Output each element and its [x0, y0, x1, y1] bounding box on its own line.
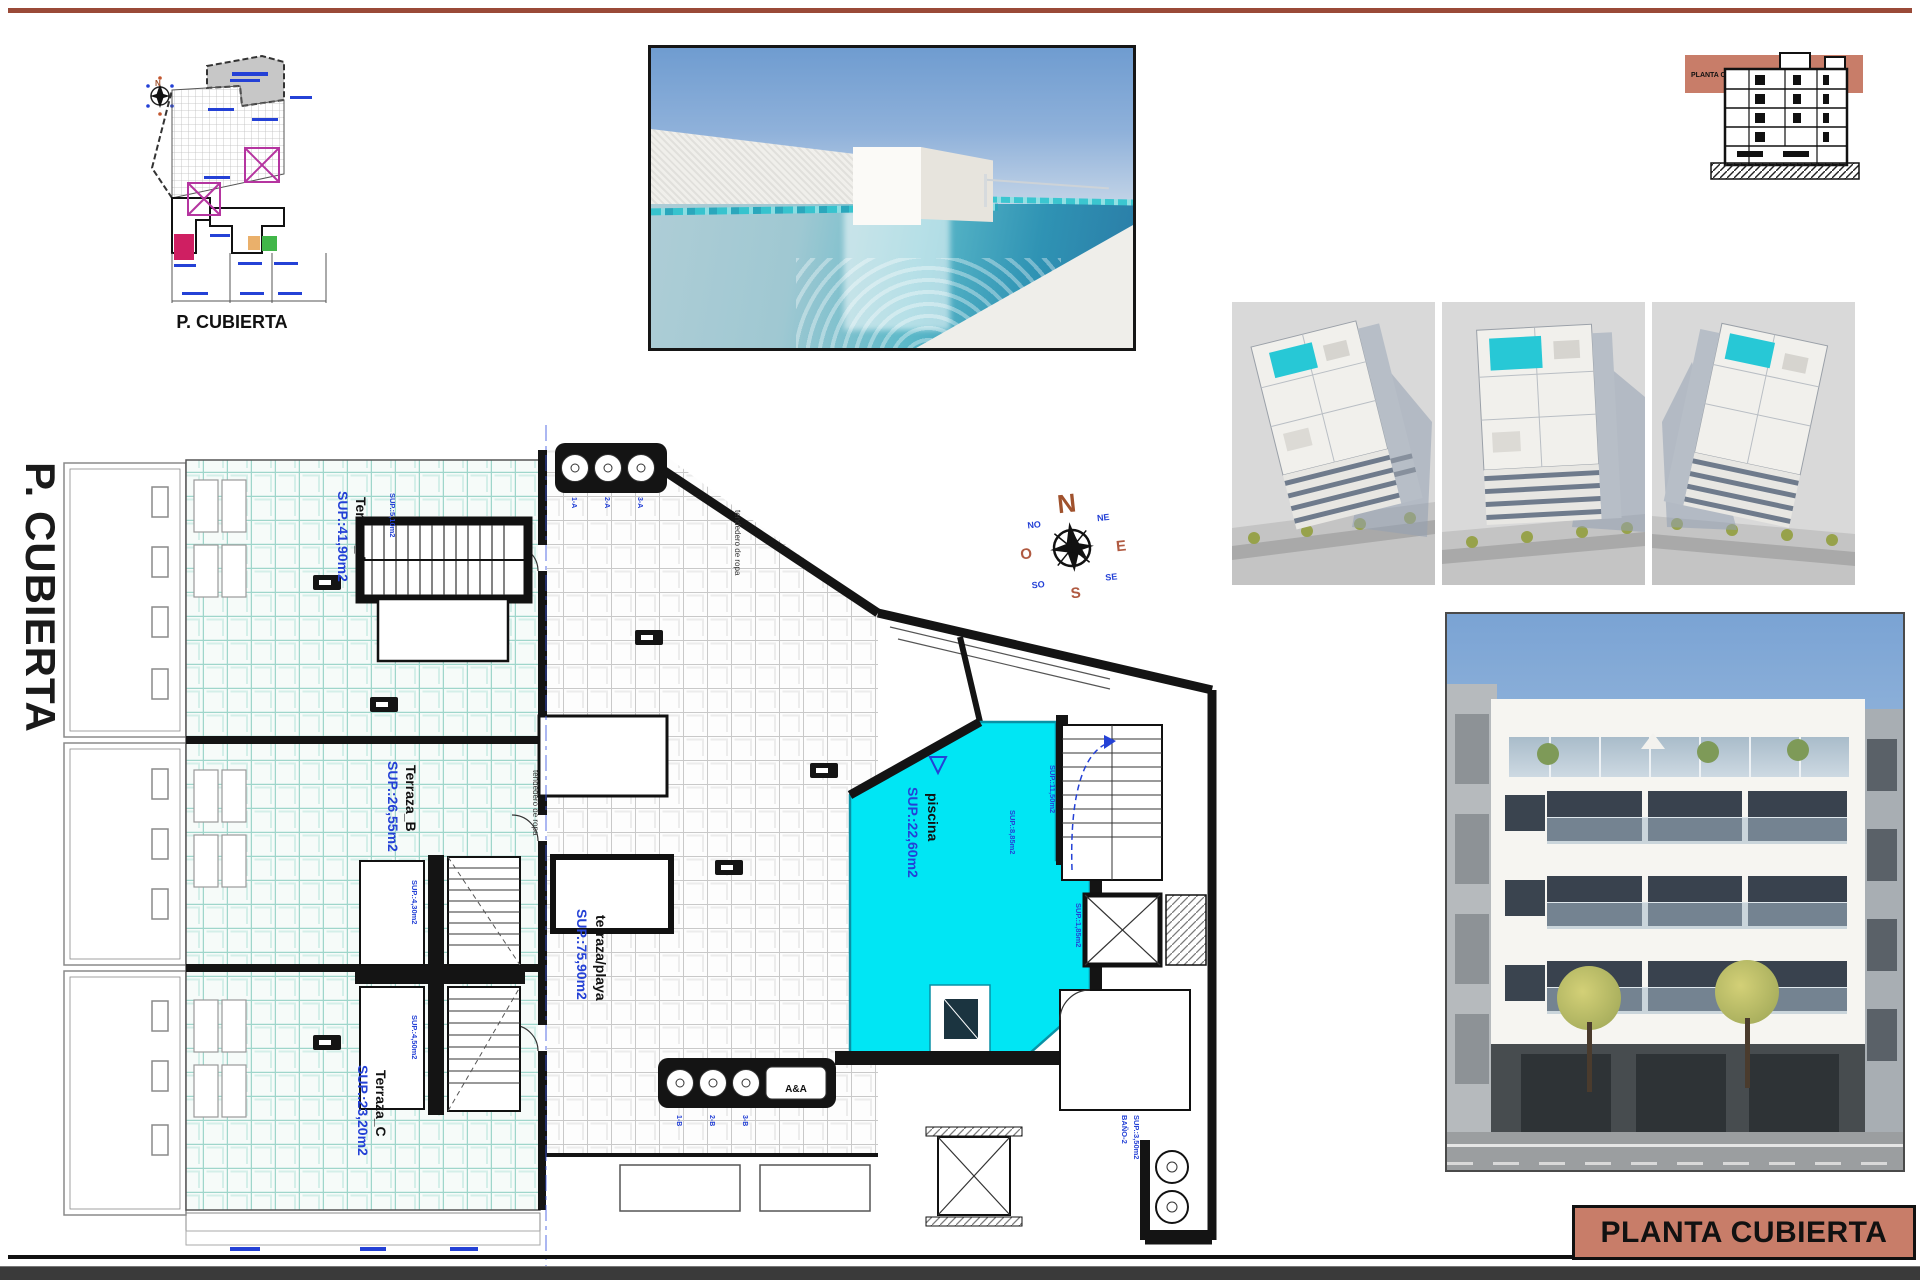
drawing-sheet: N	[0, 0, 1920, 1280]
site-unit-mark-green	[262, 236, 277, 251]
piscina-sup: SUP.:22,60m2	[905, 787, 921, 878]
deck-room	[539, 716, 667, 796]
stairwell-window	[1505, 880, 1545, 916]
deck-room-thick	[553, 857, 671, 931]
site-unit-mark-red	[174, 234, 194, 260]
stair-top	[360, 521, 528, 661]
sup-mini-label: SUP.:11,50m2	[1048, 765, 1057, 813]
street-tree-trunk	[1587, 1022, 1592, 1092]
render-handrail	[984, 179, 1109, 190]
terraza-a-sup: SUP.:41,90m2	[335, 491, 351, 582]
site-key-plan: N	[112, 48, 352, 310]
building-section-mini: PLANTA CUBIERTA	[1685, 45, 1863, 185]
aerial-building	[1664, 319, 1828, 528]
main-building-facade	[1491, 699, 1865, 1132]
neighbor-building-right	[1859, 709, 1905, 1172]
sheet-left-title: P. CUBIERTA	[16, 462, 64, 733]
roof-tree	[1697, 741, 1719, 763]
title-block: PLANTA CUBIERTA	[1572, 1205, 1916, 1260]
terraza-b-sup: SUP.:26,55m2	[385, 761, 401, 852]
balcony-glass-rail	[1547, 817, 1847, 844]
bottom-bar	[0, 1266, 1920, 1280]
bottom-rule	[8, 1255, 1574, 1259]
playa-name: terraza/playa	[593, 915, 609, 1001]
circle-label: 2-A	[603, 497, 610, 508]
render-white-volume-side	[921, 147, 993, 222]
stairwell-window	[1505, 795, 1545, 831]
street-dashed-line	[1447, 1162, 1905, 1165]
lift-box-label: A&A	[785, 1084, 807, 1095]
tendedero-label: tendedero de ropa	[531, 770, 540, 836]
top-rule	[8, 8, 1912, 13]
balcony-glass-rail	[1547, 902, 1847, 929]
sup-mini-label: SUP.:4,50m2	[410, 1015, 419, 1059]
circle-label: 2-B	[708, 1115, 715, 1126]
aerial-render-1	[1232, 302, 1435, 585]
aerial-render-2	[1442, 302, 1645, 585]
terraza-c-sup: SUP.:23,20m2	[355, 1065, 371, 1156]
section-building	[1725, 53, 1847, 165]
bano-name-label: BAÑO-2	[1120, 1115, 1129, 1144]
site-plan-caption: P. CUBIERTA	[112, 312, 352, 333]
bano-sup-label: SUP.:3,50m2	[1132, 1115, 1141, 1159]
roof-tree	[1787, 739, 1809, 761]
sup-mini-label: SUP.:5,10m2	[388, 493, 397, 537]
tendedero-label: tendedero de ropa	[733, 510, 742, 576]
ground-floor	[1491, 1044, 1865, 1132]
sup-mini-label: SUP.:1,85m2	[1074, 903, 1083, 947]
piscina-name: piscina	[925, 793, 941, 841]
playa-sup: SUP.:75,90m2	[574, 909, 590, 1000]
diagonal-wall	[878, 613, 1212, 690]
left-overhang-strips	[64, 463, 186, 1215]
aerial-renders-strip	[1232, 302, 1855, 585]
terrace-separator-wall	[186, 736, 540, 744]
render-white-volume-front	[853, 147, 920, 225]
street-tree-trunk	[1745, 1018, 1750, 1088]
street-tree	[1557, 966, 1621, 1030]
sup-mini-label: SUP.:8,85m2	[1008, 810, 1017, 854]
terraza-b-name: Terraza_B	[403, 765, 419, 832]
section-ground-hatch	[1711, 163, 1859, 179]
aerial-building	[1477, 323, 1622, 525]
title-block-label: PLANTA CUBIERTA	[1601, 1216, 1888, 1250]
street-tree	[1715, 960, 1779, 1024]
circle-label: 3-B	[741, 1115, 748, 1126]
terraza-a-name: Terraza_A	[353, 497, 369, 564]
stairwell-window	[1505, 965, 1545, 1001]
elevation-render	[1445, 612, 1905, 1172]
site-unit-mark-orange	[248, 236, 260, 250]
pool-photo-render	[648, 45, 1136, 351]
circle-label: 3-A	[636, 497, 643, 508]
aerial-building	[1251, 316, 1423, 530]
aerial-render-3	[1652, 302, 1855, 585]
roof-floor-plan: 1-A 2-A 3-A	[60, 425, 1225, 1270]
solarium-band-bottom	[658, 1058, 836, 1108]
neighbor-building-left	[1447, 684, 1497, 1172]
circle-label: 1-B	[675, 1115, 682, 1126]
roof-tree	[1537, 743, 1559, 765]
sup-mini-label: SUP.:4,30m2	[410, 880, 419, 924]
roof-umbrella	[1641, 733, 1665, 749]
dimension-strip	[186, 1213, 540, 1251]
solarium-band-top	[555, 443, 667, 493]
aerial-pool	[1489, 336, 1543, 371]
render-handrail-post	[984, 174, 987, 207]
terraza-c-name: Terraza_C	[373, 1070, 389, 1137]
street	[1447, 1132, 1905, 1172]
svg-text:N: N	[155, 79, 161, 88]
shaft-box	[926, 1127, 1022, 1226]
circle-label: 1-A	[570, 497, 577, 508]
street-curb	[1447, 1144, 1905, 1147]
